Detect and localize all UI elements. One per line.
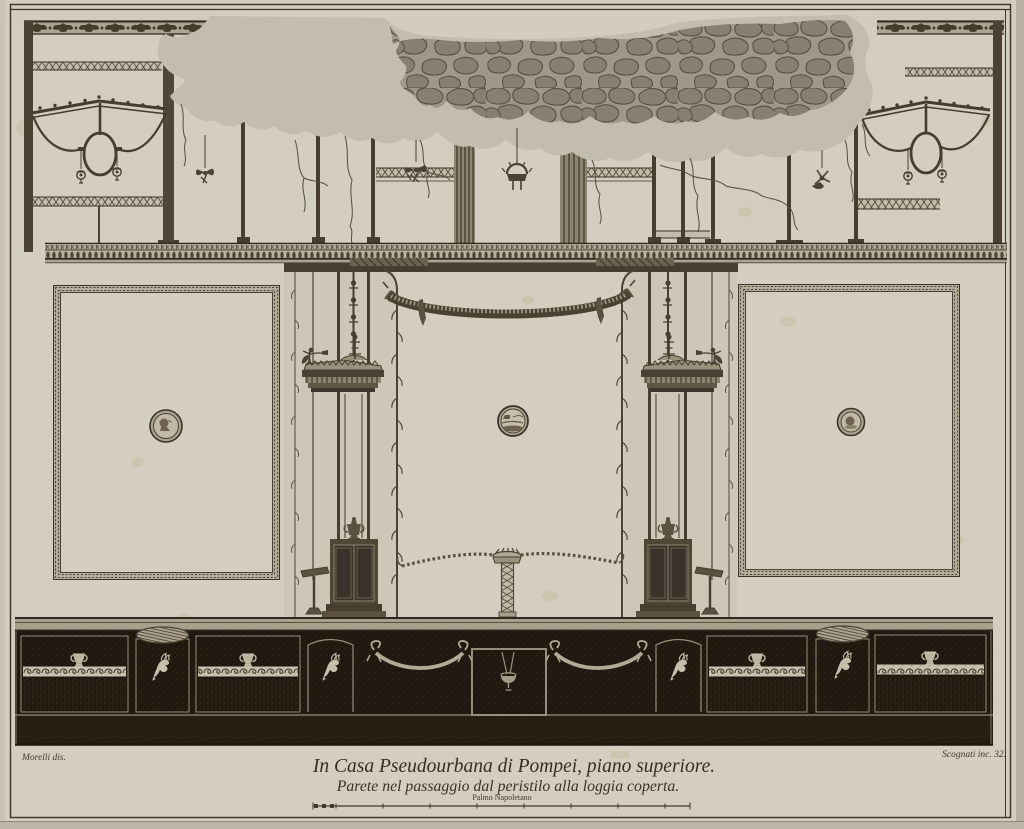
svg-text:Scognati inc. 32.: Scognati inc. 32. bbox=[942, 750, 1006, 760]
svg-text:In Casa Pseudourbana di Pompei: In Casa Pseudourbana di Pompei, piano su… bbox=[312, 756, 715, 777]
svg-text:Morelli dis.: Morelli dis. bbox=[21, 753, 66, 763]
svg-text:Palmo Napoletano: Palmo Napoletano bbox=[472, 793, 531, 802]
